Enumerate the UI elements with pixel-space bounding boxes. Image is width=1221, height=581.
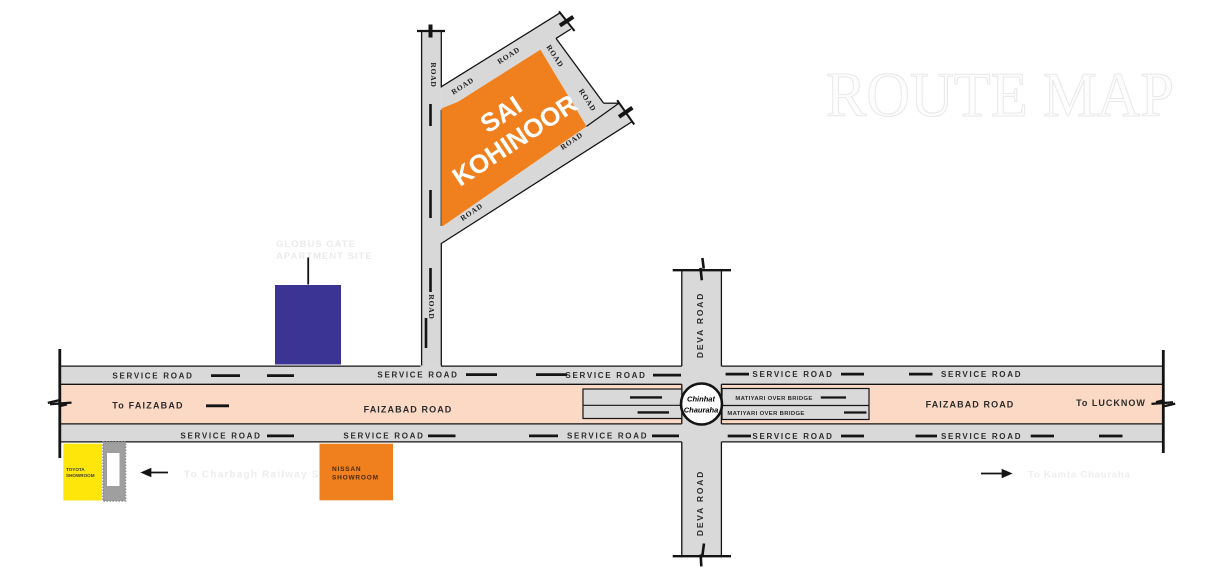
svg-text:To Charbagh Railway Stn: To Charbagh Railway Stn	[184, 470, 331, 481]
svg-text:MATIYARI OVER BRIDGE: MATIYARI OVER BRIDGE	[735, 396, 812, 402]
svg-text:ROUTE MAP: ROUTE MAP	[826, 59, 1174, 130]
svg-text:SERVICE ROAD: SERVICE ROAD	[941, 370, 1022, 379]
svg-text:APARTMENT SITE: APARTMENT SITE	[276, 251, 373, 262]
svg-text:SERVICE ROAD: SERVICE ROAD	[752, 370, 833, 379]
svg-text:To Kamta Chauraha: To Kamta Chauraha	[1028, 470, 1131, 481]
svg-text:Chauraha: Chauraha	[684, 406, 719, 415]
svg-text:To FAIZABAD: To FAIZABAD	[112, 401, 184, 411]
svg-text:ROAD: ROAD	[429, 62, 438, 87]
svg-text:SHOWROOM: SHOWROOM	[332, 475, 379, 482]
svg-text:FAIZABAD ROAD: FAIZABAD ROAD	[364, 405, 453, 415]
svg-text:NISSAN: NISSAN	[332, 466, 361, 473]
svg-text:To LUCKNOW: To LUCKNOW	[1076, 398, 1146, 408]
svg-text:SERVICE ROAD: SERVICE ROAD	[180, 432, 261, 441]
svg-text:TOYOTA: TOYOTA	[66, 467, 85, 472]
svg-text:Chinhat: Chinhat	[687, 395, 715, 404]
svg-text:DEVA ROAD: DEVA ROAD	[695, 470, 705, 536]
svg-text:GLOBUS GATE: GLOBUS GATE	[276, 239, 356, 250]
svg-text:SERVICE ROAD: SERVICE ROAD	[112, 372, 193, 381]
svg-text:DEVA ROAD: DEVA ROAD	[695, 292, 705, 358]
svg-text:SERVICE ROAD: SERVICE ROAD	[565, 371, 646, 380]
svg-text:SERVICE ROAD: SERVICE ROAD	[567, 432, 648, 441]
svg-text:MATIYARI OVER BRIDGE: MATIYARI OVER BRIDGE	[727, 411, 804, 417]
svg-text:SERVICE ROAD: SERVICE ROAD	[377, 371, 458, 380]
svg-text:SERVICE ROAD: SERVICE ROAD	[941, 432, 1022, 441]
svg-text:SERVICE ROAD: SERVICE ROAD	[343, 432, 424, 441]
svg-text:SHOWROOM: SHOWROOM	[66, 473, 95, 478]
svg-text:SERVICE ROAD: SERVICE ROAD	[752, 432, 833, 441]
svg-text:FAIZABAD ROAD: FAIZABAD ROAD	[926, 400, 1015, 410]
svg-text:ROAD: ROAD	[427, 294, 436, 319]
